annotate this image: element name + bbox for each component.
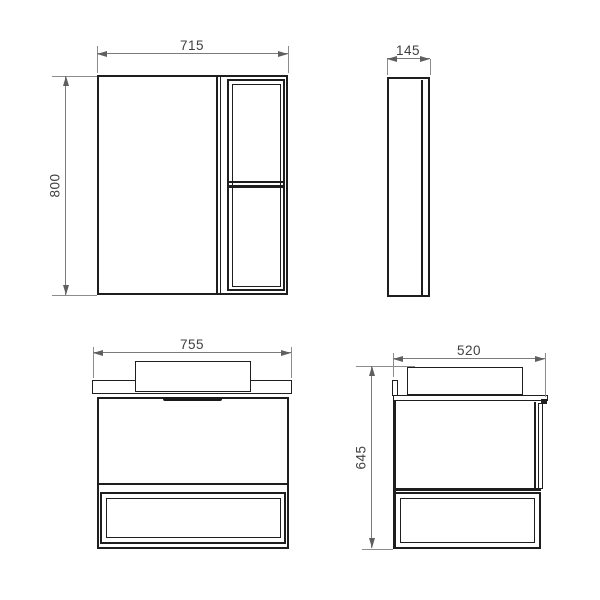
dim-label-vanity-width: 755 (169, 337, 215, 352)
extension-line (52, 76, 97, 77)
dimension-line (393, 358, 545, 359)
dimension-line (65, 76, 66, 295)
dim-label-vanity-height: 645 (354, 438, 369, 478)
dim-label-mirror-height: 800 (48, 166, 63, 206)
washbasin-front (135, 361, 251, 392)
arrowhead-right-icon (278, 51, 288, 57)
middle-shelf-line (228, 181, 284, 183)
mirror-door-edge-line (216, 77, 218, 293)
drawer-bottom-line (99, 483, 287, 485)
washbasin-side (407, 367, 523, 395)
dim-label-mirror-width: 715 (169, 38, 215, 53)
open-niche-inner-frame (106, 498, 281, 539)
mirror-side-outline (387, 77, 430, 297)
arrowhead-left-icon (93, 350, 103, 356)
drawer-handle (163, 397, 222, 402)
arrowhead-up-icon (369, 366, 375, 376)
drawer-front-edge-strip (538, 403, 543, 489)
technical-drawing: 715 800 145 755 (0, 0, 600, 600)
mirror-door-thickness-line (421, 80, 423, 295)
dim-label-mirror-depth: 145 (385, 43, 431, 58)
dimension-line (93, 352, 291, 353)
arrowhead-down-icon (63, 285, 69, 295)
extension-line (52, 295, 97, 296)
arrowhead-left-icon (97, 51, 107, 57)
arrowhead-left-icon (393, 356, 403, 362)
dimension-line (97, 53, 288, 54)
arrowhead-down-icon (369, 538, 375, 548)
middle-shelf-line (228, 185, 284, 187)
arrowhead-right-icon (535, 356, 545, 362)
backsplash-tab (392, 380, 398, 396)
vanity-side-mid-line (394, 488, 541, 491)
open-niche-side-inner-frame (400, 498, 535, 544)
carcass-front-edge-line (534, 402, 536, 489)
extension-line (356, 366, 415, 367)
extension-line (362, 549, 393, 550)
arrowhead-up-icon (63, 76, 69, 86)
dim-label-vanity-depth: 520 (446, 343, 492, 358)
countertop-side (393, 395, 548, 401)
arrowhead-right-icon (281, 350, 291, 356)
mirror-door-edge-line (220, 77, 222, 293)
dimension-line (371, 366, 372, 548)
